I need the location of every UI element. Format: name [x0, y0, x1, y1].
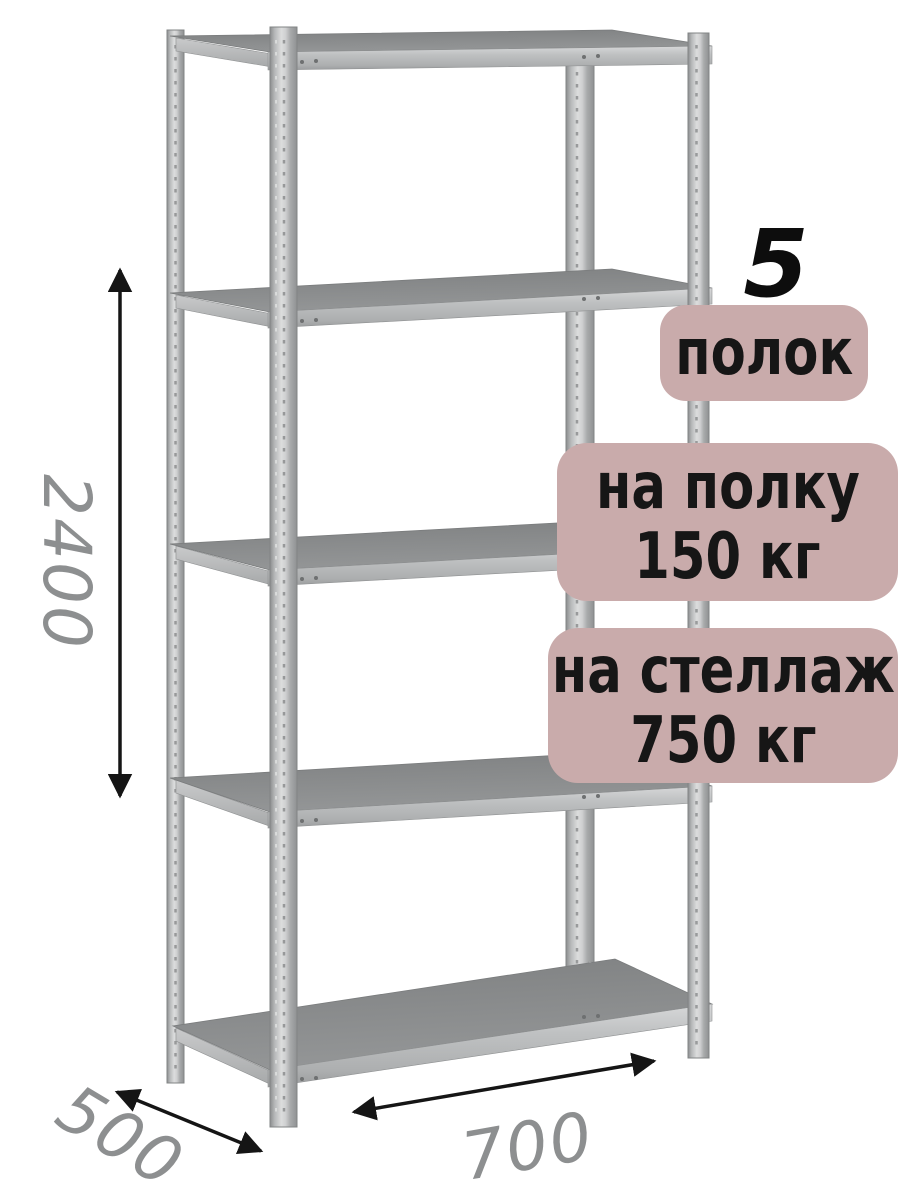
per-rack-load-value: 750 кг: [630, 706, 816, 776]
per-rack-load-text: на стеллаж: [552, 636, 895, 706]
product-image: 2400 500 700 5 полок на полку 150 кг на …: [0, 0, 900, 1200]
per-shelf-load-badge: на полку 150 кг: [557, 443, 898, 601]
rack-post-front-left: [270, 27, 297, 1127]
height-dimension-label: 2400: [33, 432, 99, 692]
shelf-count-number: 5: [716, 218, 836, 312]
per-rack-load-badge: на стеллаж 750 кг: [548, 628, 898, 783]
shelf-count-badge: полок: [660, 305, 868, 401]
shelf-2: [170, 269, 712, 328]
shelf-5: [173, 959, 712, 1087]
per-shelf-load-value: 150 кг: [634, 522, 820, 592]
per-shelf-load-text: на полку: [596, 452, 860, 522]
shelf-1: [170, 30, 712, 70]
shelf-count-badge-label: полок: [675, 318, 853, 388]
